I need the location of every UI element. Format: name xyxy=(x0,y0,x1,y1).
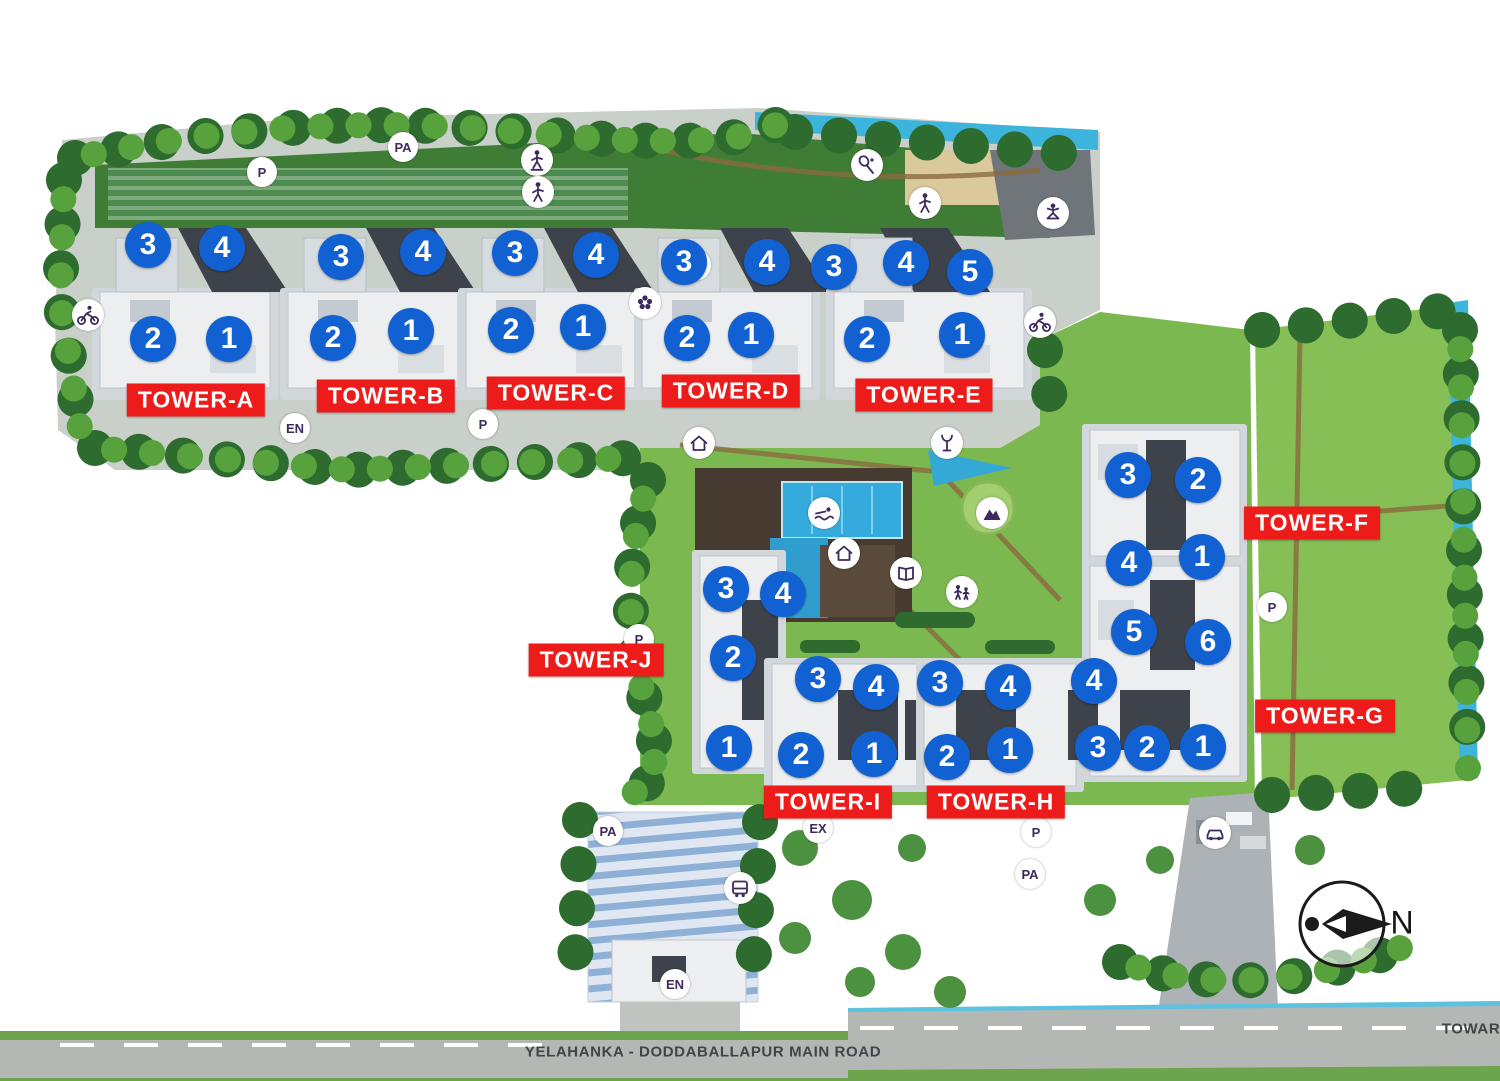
unit-marker-h-2: 2 xyxy=(924,734,970,780)
swimming-pool-icon xyxy=(808,497,840,529)
unit-marker-g-6: 6 xyxy=(1185,619,1231,665)
unit-marker-j-4: 4 xyxy=(760,571,806,617)
tower-label-a: TOWER-A xyxy=(127,384,265,417)
unit-marker-c-2: 2 xyxy=(488,307,534,353)
unit-marker-a-3: 3 xyxy=(125,222,171,268)
unit-marker-e-1: 1 xyxy=(939,312,985,358)
parking-marker: P xyxy=(1257,592,1287,622)
unit-marker-f-1: 1 xyxy=(1179,534,1225,580)
unit-marker-i-4: 4 xyxy=(853,664,899,710)
unit-marker-b-1: 1 xyxy=(388,308,434,354)
unit-marker-e-4: 4 xyxy=(883,240,929,286)
unit-marker-a-4: 4 xyxy=(199,225,245,271)
cyclist-icon-2 xyxy=(1024,306,1056,338)
unit-marker-f-4: 4 xyxy=(1106,540,1152,586)
unit-marker-g-3: 3 xyxy=(1075,725,1121,771)
unit-marker-i-3: 3 xyxy=(795,656,841,702)
unit-marker-f-2: 2 xyxy=(1175,457,1221,503)
clubhouse-icon xyxy=(828,537,860,569)
yoga-icon xyxy=(1037,197,1069,229)
road-direction-label: TOWAR xyxy=(1442,1021,1500,1038)
unit-marker-b-4: 4 xyxy=(400,229,446,275)
unit-marker-h-1: 1 xyxy=(987,727,1033,773)
unit-marker-b-3: 3 xyxy=(318,234,364,280)
gazebo-icon xyxy=(683,427,715,459)
unit-marker-j-1: 1 xyxy=(706,725,752,771)
tower-label-j: TOWER-J xyxy=(529,644,664,677)
unit-marker-g-2: 2 xyxy=(1124,725,1170,771)
tower-label-i: TOWER-I xyxy=(764,786,892,819)
road-name-label: YELAHANKA - DODDABALLAPUR MAIN ROAD xyxy=(525,1044,881,1061)
unit-marker-h-3: 3 xyxy=(917,660,963,706)
compass-north-label: N xyxy=(1390,905,1413,942)
reading-icon xyxy=(890,557,922,589)
unit-marker-a-1: 1 xyxy=(206,316,252,362)
skating-icon xyxy=(521,144,553,176)
exercise-icon xyxy=(522,176,554,208)
unit-marker-d-4: 4 xyxy=(744,239,790,285)
site-plan-illustration xyxy=(0,0,1500,1081)
cyclist-icon xyxy=(72,299,104,331)
tower-label-b: TOWER-B xyxy=(317,380,455,413)
park-area-marker: PA xyxy=(1015,859,1045,889)
unit-marker-a-2: 2 xyxy=(130,316,176,362)
unit-marker-j-2: 2 xyxy=(710,635,756,681)
unit-marker-d-3: 3 xyxy=(661,239,707,285)
bus-stop-icon xyxy=(724,872,756,904)
jogging-icon xyxy=(909,187,941,219)
entrance-marker: EN xyxy=(280,413,310,443)
climbing-icon xyxy=(976,497,1008,529)
unit-marker-e-2: 2 xyxy=(844,316,890,362)
park-area-marker: PA xyxy=(593,816,623,846)
tower-label-g: TOWER-G xyxy=(1255,700,1395,733)
unit-marker-i-1: 1 xyxy=(851,731,897,777)
racquet-court-icon xyxy=(851,149,883,181)
unit-marker-h-4: 4 xyxy=(985,664,1031,710)
tower-label-e: TOWER-E xyxy=(855,379,992,412)
parking-marker: P xyxy=(1021,817,1051,847)
unit-marker-b-2: 2 xyxy=(310,315,356,361)
car-parking-icon xyxy=(1199,817,1231,849)
parking-marker: P xyxy=(247,157,277,187)
tower-label-f: TOWER-F xyxy=(1244,507,1380,540)
unit-marker-i-2: 2 xyxy=(778,732,824,778)
building-tower-f xyxy=(1082,424,1247,564)
unit-marker-g-4: 4 xyxy=(1071,658,1117,704)
parking-marker: P xyxy=(468,409,498,439)
main-road xyxy=(0,1001,1500,1081)
unit-marker-c-4: 4 xyxy=(573,232,619,278)
tower-label-c: TOWER-C xyxy=(487,377,625,410)
unit-marker-e-3: 3 xyxy=(811,244,857,290)
unit-marker-d-2: 2 xyxy=(664,315,710,361)
entrance-driveway xyxy=(588,812,758,1042)
entrance-marker: EN xyxy=(660,969,690,999)
kids-play-icon xyxy=(946,576,978,608)
unit-marker-j-3: 3 xyxy=(703,566,749,612)
unit-marker-g-5: 5 xyxy=(1111,609,1157,655)
site-master-plan: YELAHANKA - DODDABALLAPUR MAIN ROAD TOWA… xyxy=(0,0,1500,1081)
unit-marker-g-1: 1 xyxy=(1180,724,1226,770)
spa-flower-icon xyxy=(629,287,661,319)
unit-marker-c-1: 1 xyxy=(560,304,606,350)
unit-marker-d-1: 1 xyxy=(728,312,774,358)
unit-marker-f-3: 3 xyxy=(1105,452,1151,498)
park-area-marker: PA xyxy=(388,132,418,162)
tower-label-h: TOWER-H xyxy=(927,786,1065,819)
unit-marker-e-5: 5 xyxy=(947,249,993,295)
unit-marker-c-3: 3 xyxy=(492,230,538,276)
tower-label-d: TOWER-D xyxy=(662,375,800,408)
fountain-icon xyxy=(931,427,963,459)
